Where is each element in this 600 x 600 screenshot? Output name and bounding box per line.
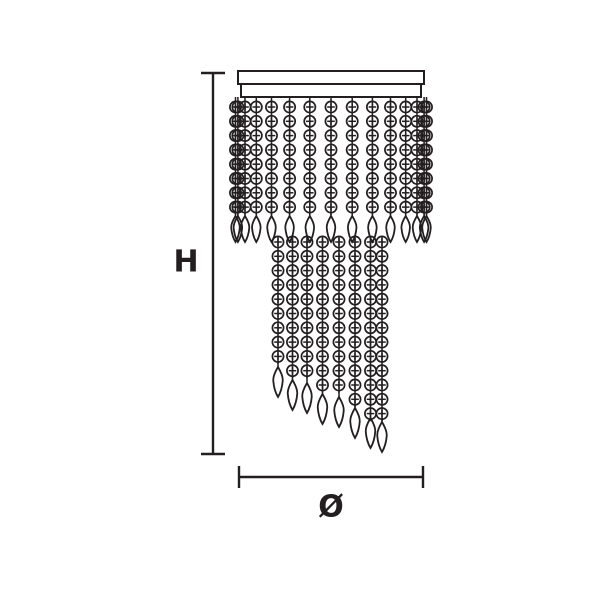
diameter-dimension-label: Ø bbox=[318, 490, 344, 525]
inner-bead-curtain bbox=[272, 236, 387, 452]
diameter-dimension-line bbox=[238, 466, 423, 488]
fixture-line-art bbox=[201, 71, 432, 488]
pendant-light-dimension-diagram: H Ø bbox=[0, 0, 600, 600]
canopy-plate bbox=[238, 71, 424, 97]
height-dimension-label: H bbox=[173, 245, 198, 280]
h-dimension-line bbox=[201, 72, 225, 455]
outer-bead-curtain bbox=[230, 97, 432, 242]
diagram-canvas: H Ø bbox=[0, 0, 600, 600]
